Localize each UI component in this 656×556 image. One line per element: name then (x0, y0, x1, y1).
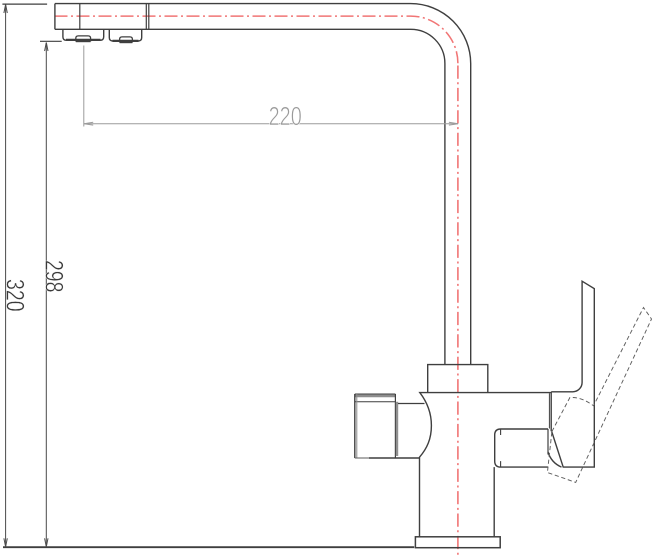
svg-text:298: 298 (40, 260, 68, 293)
svg-text:320: 320 (1, 279, 29, 312)
svg-text:220: 220 (269, 102, 302, 131)
